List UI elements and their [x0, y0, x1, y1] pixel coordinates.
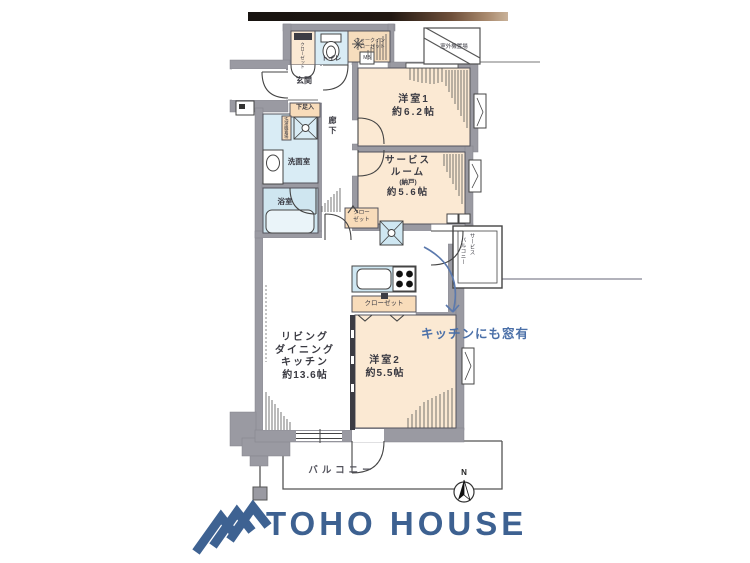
western2-size: 約5.5帖 [335, 368, 435, 381]
toho-house-logo-text: TOHO HOUSE [266, 503, 566, 544]
sr-closet-label: クロー ゼット [345, 210, 378, 224]
compass-north-label: N [452, 468, 476, 478]
outdoor-unit-label: 室外機置場 [424, 44, 484, 51]
room-label-western1: 洋室1 約6.2帖 [364, 94, 464, 119]
wr2-closet-label: クローゼット [352, 300, 416, 308]
ldk-line1: リビング [255, 332, 355, 345]
kitchen-window-annotation: キッチンにも窓有 [420, 327, 530, 343]
service-room-line1: サービス [358, 155, 458, 167]
wic-label: ウォークイン クローゼット [348, 38, 392, 51]
sr-closet-line1: クロー [345, 210, 378, 217]
western1-size: 約6.2帖 [364, 107, 464, 120]
service-room-line3: (納戸) [358, 179, 458, 187]
corridor-label: 廊下 [328, 116, 336, 136]
entrance-closet-label: クローゼット [300, 42, 305, 69]
western2-name: 洋室2 [335, 355, 435, 368]
wic-line2: クローゼット [348, 44, 392, 50]
toho-house-logo-mark [196, 507, 268, 552]
balcony-post [253, 487, 267, 500]
shoe-box-label: 下足入 [290, 105, 320, 113]
toilet-label: トイレ [315, 55, 348, 63]
floorplan-graphics [0, 0, 750, 563]
floor-plan-page: 洋室1 約6.2帖 サービス ルーム (納戸) 約5.6帖 リビング ダイニング… [0, 0, 750, 563]
balcony-label: バルコニー [292, 465, 392, 477]
service-balcony-label-1: サービス [468, 233, 474, 255]
service-balcony-label-2: バルコニー [459, 237, 465, 265]
service-room-line4: 約5.6帖 [358, 187, 458, 199]
laundry-label: 洗濯機置場 [284, 117, 288, 139]
western1-name: 洋室1 [364, 94, 464, 107]
compass-icon [454, 480, 474, 502]
sr-closet-line2: ゼット [345, 217, 378, 224]
room-label-western2: 洋室2 約5.5帖 [335, 355, 435, 380]
meter-box-label: MB [360, 55, 374, 61]
bathroom-label: 浴室 [270, 197, 300, 206]
washroom-label: 洗面室 [280, 157, 318, 166]
service-room-line2: ルーム [358, 167, 458, 179]
entrance-label: 玄関 [288, 76, 320, 86]
room-label-service-room: サービス ルーム (納戸) 約5.6帖 [358, 155, 458, 199]
